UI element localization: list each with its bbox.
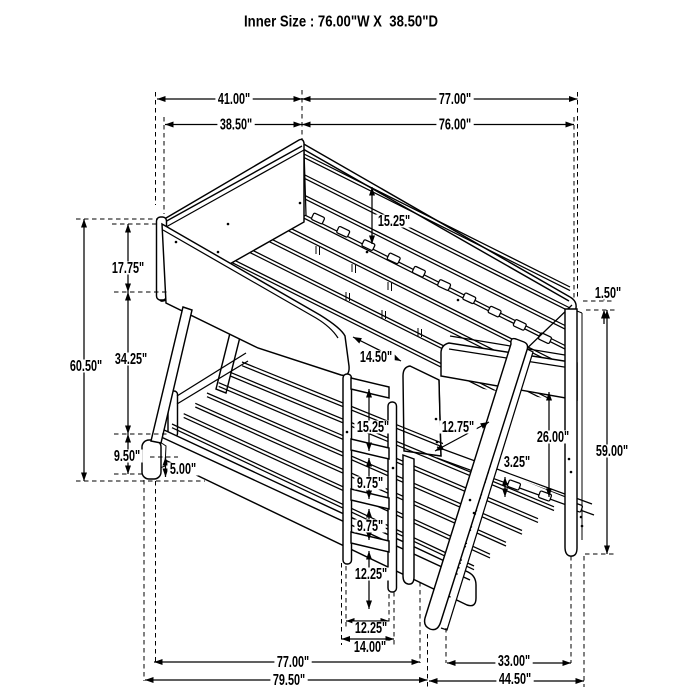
svg-text:17.75": 17.75" xyxy=(112,259,144,276)
svg-text:77.00": 77.00" xyxy=(439,90,471,107)
svg-text:34.25": 34.25" xyxy=(115,350,147,367)
svg-text:44.50": 44.50" xyxy=(499,670,531,687)
svg-text:12.75": 12.75" xyxy=(442,418,474,435)
svg-text:38.50": 38.50" xyxy=(220,116,252,133)
svg-text:9.75": 9.75" xyxy=(357,517,383,534)
svg-text:1.50": 1.50" xyxy=(595,284,621,301)
svg-text:3.25": 3.25" xyxy=(504,453,530,470)
svg-text:14.50": 14.50" xyxy=(360,348,392,365)
svg-text:12.25": 12.25" xyxy=(355,565,387,582)
svg-text:5.00": 5.00" xyxy=(170,460,196,477)
svg-text:9.75": 9.75" xyxy=(357,474,383,491)
svg-text:76.00": 76.00" xyxy=(439,116,471,133)
svg-text:33.00": 33.00" xyxy=(498,652,530,669)
svg-text:14.00": 14.00" xyxy=(354,638,386,655)
svg-text:60.50": 60.50" xyxy=(70,357,102,374)
svg-text:9.50": 9.50" xyxy=(114,447,140,464)
svg-text:41.00": 41.00" xyxy=(218,90,250,107)
svg-text:12.25": 12.25" xyxy=(355,619,387,636)
svg-text:79.50": 79.50" xyxy=(273,671,305,688)
svg-text:15.25": 15.25" xyxy=(357,418,389,435)
svg-text:15.25": 15.25" xyxy=(378,212,410,229)
svg-text:77.00": 77.00" xyxy=(277,653,309,670)
svg-text:59.00": 59.00" xyxy=(596,442,628,459)
svg-text:Inner Size : 76.00"W X 38.50": Inner Size : 76.00"W X 38.50"D xyxy=(244,13,438,30)
svg-text:26.00": 26.00" xyxy=(537,428,569,445)
